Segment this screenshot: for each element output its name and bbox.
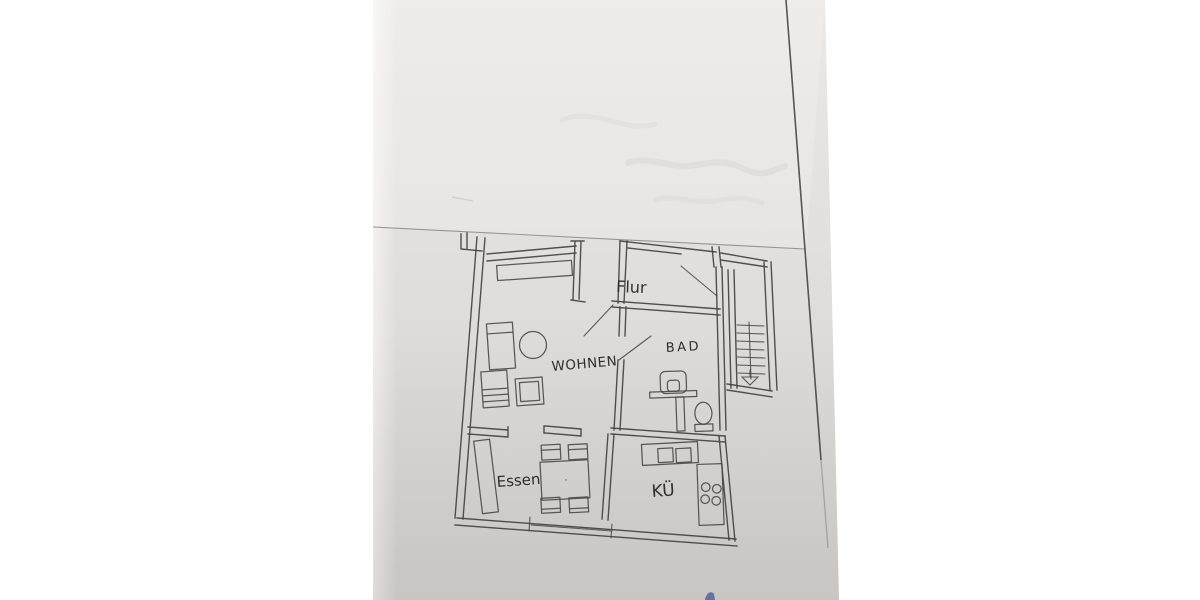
photo-canvas: Flur WOHNEN BAD Essen KÜ: [0, 0, 1200, 600]
room-label-kueche: KÜ: [651, 478, 676, 502]
paper-shading: [373, 0, 839, 600]
room-label-essen: Essen: [496, 470, 541, 491]
room-label-bad: BAD: [665, 339, 701, 356]
room-label-flur: Flur: [616, 277, 647, 297]
floor-plan-photo: Flur WOHNEN BAD Essen KÜ: [0, 0, 1200, 600]
paper-sheet: [373, 0, 839, 600]
